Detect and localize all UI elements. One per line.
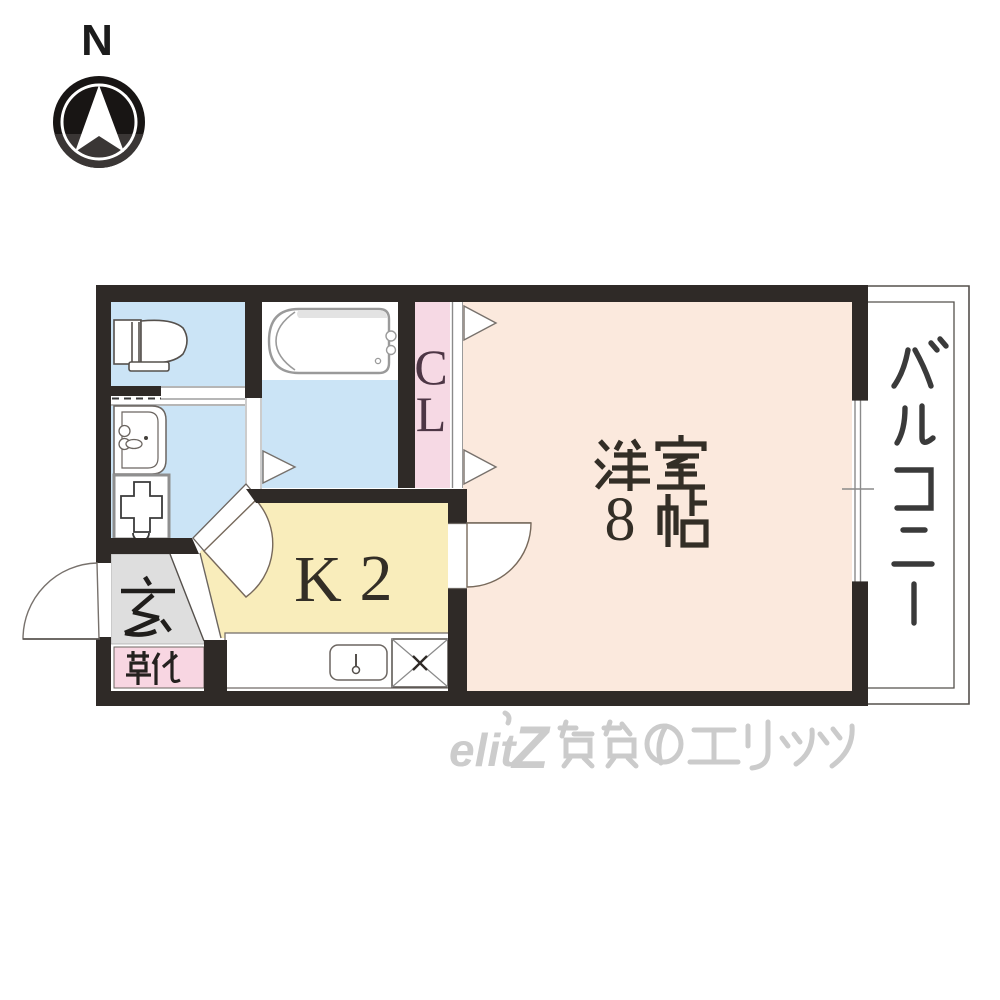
svg-text:elit: elit [449, 724, 517, 776]
svg-text:Z: Z [510, 714, 551, 781]
svg-text:N: N [81, 16, 113, 65]
svg-text:2: 2 [360, 542, 393, 615]
svg-text:L: L [416, 386, 447, 442]
svg-text:K: K [294, 543, 342, 616]
svg-text:8: 8 [605, 486, 636, 554]
